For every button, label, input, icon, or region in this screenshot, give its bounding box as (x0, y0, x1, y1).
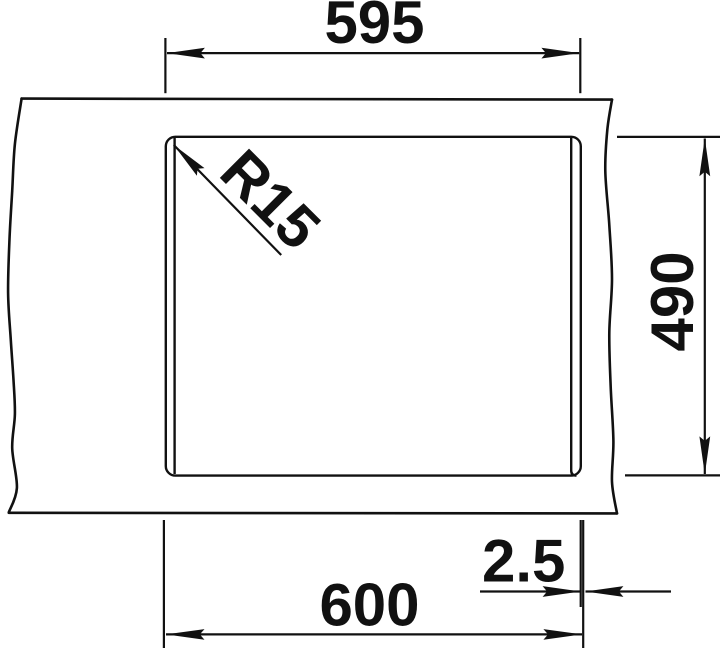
svg-text:600: 600 (319, 572, 419, 639)
svg-text:595: 595 (324, 0, 424, 56)
svg-text:490: 490 (639, 251, 706, 351)
svg-text:2.5: 2.5 (482, 528, 565, 595)
svg-text:R15: R15 (208, 137, 333, 262)
